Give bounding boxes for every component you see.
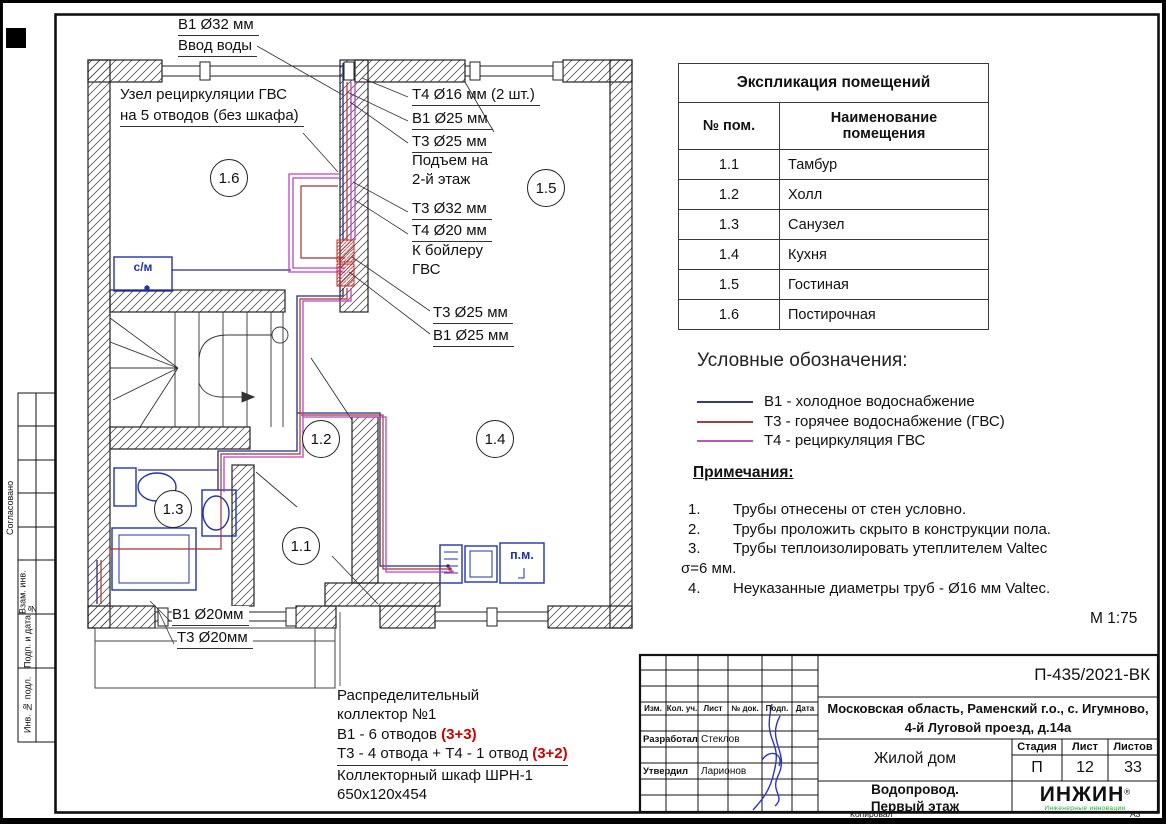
callout-t4-20: Т4 Ø20 мм (412, 222, 492, 242)
notes-list: 1.Трубы отнесены от стен условно. 2.Труб… (681, 500, 1053, 599)
room-circle-1-6: 1.6 (210, 159, 248, 197)
callout-boiler-1: К бойлеру (412, 242, 483, 260)
stamp-col-list: Лист (698, 704, 728, 713)
table-row: 1.3Санузел (679, 210, 989, 240)
table-row: 1.4Кухня (679, 240, 989, 270)
table-row: 1.6Постирочная (679, 300, 989, 330)
collector-note-line5: Коллекторный шкаф ШРН-1 (337, 766, 568, 785)
strip-vzam-label: Взам. инв. № (19, 560, 36, 614)
strip-inv-label: Инв. № подл. (19, 668, 36, 742)
callout-inlet-caption: Ввод воды (178, 37, 257, 57)
legend-line-t4 (697, 440, 753, 442)
callout-b1-25-mid: В1 Ø25 мм (433, 327, 514, 347)
washing-machine-label: с/м (116, 260, 170, 274)
stamp-developed-name: Стеклов (701, 734, 740, 745)
strip-podp-label: Подп. и дата (19, 614, 36, 668)
callout-boiler-2: ГВС (412, 261, 440, 279)
stamp-sheet-label: Лист (1062, 741, 1108, 753)
legend-item-t3: Т3 - горячее водоснабжение (ГВС) (697, 413, 1005, 430)
stamp-address: Московская область, Раменский г.о., с. И… (820, 700, 1156, 738)
sink-icon (202, 490, 236, 536)
stamp-approved-label: Утвердил (643, 766, 688, 777)
stamp-doc-number: П-435/2021-ВК (828, 665, 1150, 685)
stamp-stage-label: Стадия (1012, 741, 1062, 753)
stamp-col-kol: Кол. уч. (666, 704, 698, 713)
table-row: 1.5Гостиная (679, 270, 989, 300)
stamp-col-podp: Подп. (762, 704, 792, 713)
table-row: 1.2Холл (679, 180, 989, 210)
note-item: 3.Трубы теплоизолировать утеплителем Val… (681, 539, 1053, 578)
collector-note-line1: Распределительный (337, 686, 568, 705)
room-circle-1-2: 1.2 (302, 420, 340, 458)
room-circle-1-1: 1.1 (282, 527, 320, 565)
explication-table: Экспликация помещений № пом. Наименовани… (678, 63, 989, 330)
collector-note-line2: коллектор №1 (337, 705, 568, 724)
dishwasher-label: п.м. (502, 548, 542, 562)
format-label: А3 (1130, 809, 1140, 819)
room-circle-1-3: 1.3 (154, 490, 192, 528)
notes-title: Примечания: (693, 464, 794, 482)
explication-col-num: № пом. (679, 103, 780, 150)
collector-note-line3: В1 - 6 отводов (3+3) (337, 725, 568, 744)
stamp-col-dok: № док. (728, 704, 762, 713)
drawing-sheet: В1 Ø32 мм Ввод воды Узел рециркуляции ГВ… (0, 0, 1166, 824)
bathtub-icon (112, 528, 196, 590)
stamp-sheet-name: Водопровод. Первый этаж (818, 782, 1012, 816)
stamp-col-izm: Изм. (640, 704, 666, 713)
callout-rise-2: 2-й этаж (412, 171, 470, 189)
stamp-stage-value: П (1012, 759, 1062, 777)
note-item: 4.Неуказанные диаметры труб - Ø16 мм Val… (681, 579, 1053, 599)
stamp-sheets-label: Листов (1108, 741, 1158, 753)
callout-t3-25-top: Т3 Ø25 мм (412, 133, 492, 153)
explication-title: Экспликация помещений (679, 64, 989, 103)
room-circle-1-4: 1.4 (476, 420, 514, 458)
note-item: 2.Трубы проложить скрыто в конструкции п… (681, 520, 1053, 540)
note-item: 1.Трубы отнесены от стен условно. (681, 500, 1053, 520)
pipe-t3-hot (101, 82, 450, 604)
callout-t3-20: Т3 Ø20мм (177, 629, 253, 649)
callout-recirc-node-1: Узел рециркуляции ГВС (120, 86, 287, 104)
legend-line-b1 (697, 401, 753, 403)
callout-recirc-node-2: на 5 отводов (без шкафа) (120, 107, 304, 127)
copied-label: Копировал (850, 809, 893, 819)
stamp-object-name: Жилой дом (818, 750, 1012, 768)
legend-item-t4: Т4 - рециркуляция ГВС (697, 432, 925, 449)
callout-t4-16: Т4 Ø16 мм (2 шт.) (412, 86, 540, 106)
explication-col-name: Наименование помещения (780, 103, 989, 150)
callout-inlet-pipe: В1 Ø32 мм (178, 16, 259, 36)
signature-icon (753, 704, 781, 810)
walls-layer (88, 60, 632, 628)
room-circle-1-5: 1.5 (527, 169, 565, 207)
table-row: 1.1Тамбур (679, 150, 989, 180)
callout-b1-25-top: В1 Ø25 мм (412, 110, 493, 130)
scale-label: М 1:75 (1090, 610, 1137, 628)
stamp-sheet-value: 12 (1062, 759, 1108, 777)
callout-t3-32: Т3 Ø32 мм (412, 200, 492, 220)
kitchen-sink-icon (440, 545, 497, 583)
stamp-col-data: Дата (792, 704, 818, 713)
stamp-approved-name: Ларионов (701, 766, 746, 777)
callout-rise-1: Подъем на (412, 152, 488, 170)
callout-t3-25-mid: Т3 Ø25 мм (433, 304, 513, 324)
legend-line-t3 (697, 421, 753, 423)
collector-note: Распределительный коллектор №1 В1 - 6 от… (337, 686, 568, 804)
strip-agreed-label: Согласовано (2, 455, 18, 560)
legend-title: Условные обозначения: (697, 350, 908, 372)
callout-b1-20: В1 Ø20мм (172, 606, 249, 626)
stairs (110, 312, 288, 427)
collector-note-line6: 650х120х454 (337, 785, 568, 804)
stamp-sheets-value: 33 (1108, 759, 1158, 777)
stamp-developed-label: Разработал (643, 734, 698, 745)
collector-note-line4: Т3 - 4 отвода + Т4 - 1 отвод (3+2) (337, 744, 568, 765)
legend-item-b1: В1 - холодное водоснабжение (697, 393, 975, 410)
